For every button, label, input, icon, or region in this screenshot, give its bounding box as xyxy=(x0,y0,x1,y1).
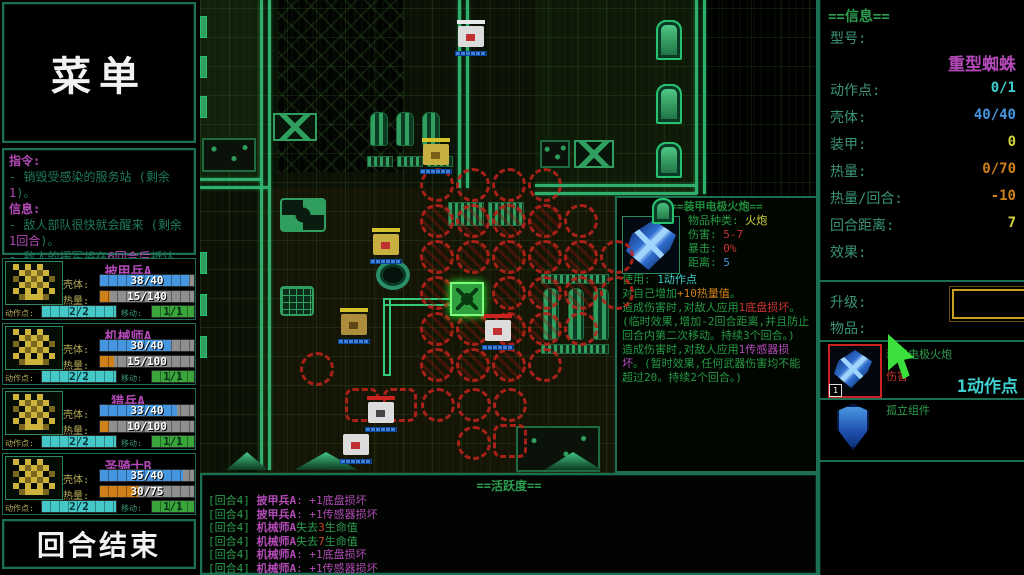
map-prop-tab xyxy=(200,336,207,358)
unit-card-1[interactable]: 披甲兵A 壳体: 38/40 热量: 15/140 动作点: 2/2 移动: 1… xyxy=(2,258,196,320)
target-circle[interactable] xyxy=(528,240,562,274)
unit-health-bar xyxy=(340,459,372,464)
model-label: 型号: xyxy=(830,28,866,48)
target-circle[interactable] xyxy=(564,204,598,238)
ap-label: 动作点: xyxy=(5,308,34,319)
unit-portrait xyxy=(5,456,63,500)
item-row-2[interactable]: 孤立组件 xyxy=(820,398,1024,462)
ap-bar: 2/2 xyxy=(41,500,117,513)
target-circle[interactable] xyxy=(528,276,562,310)
map-viewport[interactable]: ==装甲电极火炮== 物品种类: 火炮 伤害: 5-7 暴击: 0% 距离: 5… xyxy=(200,0,818,473)
drill-weapon-icon xyxy=(834,350,872,388)
unit-portrait xyxy=(5,326,63,370)
map-prop-crate xyxy=(202,138,256,172)
unit-card-2[interactable]: 机械师A 壳体: 30/40 热量: 15/100 动作点: 2/2 移动: 1… xyxy=(2,323,196,385)
map-prop-fanp xyxy=(280,198,326,232)
end-turn-button[interactable]: 回合结束 xyxy=(2,519,196,569)
log-line: [回合4] 机械师A: +1底盘损坏 xyxy=(208,548,810,562)
upgrade-label: 升级: xyxy=(830,292,866,312)
target-circle[interactable] xyxy=(600,240,634,274)
map-prop-arch xyxy=(656,142,682,178)
target-circle[interactable] xyxy=(528,348,562,382)
end-turn-label: 回合结束 xyxy=(37,524,161,564)
map-prop-arch xyxy=(656,84,682,124)
unit-status-bar xyxy=(422,138,450,142)
target-circle[interactable] xyxy=(564,276,598,310)
heat-bar: 15/140 xyxy=(99,290,195,303)
shell-label: 壳体: xyxy=(830,107,866,127)
map-prop-crate xyxy=(540,140,570,168)
map-prop-panel xyxy=(367,156,393,167)
tooltip-title: ==装甲电极火炮== xyxy=(622,200,811,214)
map-wall xyxy=(268,0,271,470)
movement-path xyxy=(383,298,391,376)
action-cost: 1动作点 xyxy=(957,372,1018,397)
robot-accent xyxy=(431,152,440,159)
target-circle[interactable] xyxy=(492,348,526,382)
target-circle[interactable] xyxy=(493,424,527,458)
ap-bar: 2/2 xyxy=(41,370,117,383)
map-unit[interactable] xyxy=(338,308,370,344)
target-circle[interactable] xyxy=(492,276,526,310)
shell-bar: 33/40 xyxy=(99,404,195,417)
robot-accent xyxy=(351,442,360,449)
target-circle[interactable] xyxy=(528,312,562,346)
target-circle[interactable] xyxy=(456,204,490,238)
map-unit[interactable] xyxy=(455,20,487,56)
model-value: 重型蜘蛛 xyxy=(948,50,1016,75)
target-circle[interactable] xyxy=(420,204,454,238)
map-wall xyxy=(260,0,263,470)
map-unit[interactable] xyxy=(482,314,514,350)
heat-label: 热量: xyxy=(830,161,866,181)
item-count-badge: 1 xyxy=(829,384,842,397)
log-line: [回合4] 机械师A失去7生命值 xyxy=(208,535,810,549)
target-circle[interactable] xyxy=(421,388,455,422)
order-line: - 销毁受感染的服务站 (剩余1)。 xyxy=(9,169,189,201)
map-prop-ring xyxy=(376,260,410,290)
heat-per-turn-label: 热量/回合: xyxy=(830,188,903,208)
move-bar: 1/1 xyxy=(151,500,195,513)
map-prop-tab xyxy=(200,294,207,316)
selected-enemy-tile[interactable] xyxy=(450,282,484,316)
target-circle[interactable] xyxy=(456,348,490,382)
shell-label: 壳体: xyxy=(63,341,89,356)
upgrade-slot[interactable] xyxy=(952,289,1024,319)
target-circle[interactable] xyxy=(420,276,454,310)
target-circle[interactable] xyxy=(528,168,562,202)
target-circle[interactable] xyxy=(420,240,454,274)
heat-value: 0/70 xyxy=(982,161,1016,177)
target-circle[interactable] xyxy=(528,204,562,238)
spider-sprite-icon xyxy=(456,288,478,310)
unit-status-bar xyxy=(340,308,368,312)
ap-bar: 2/2 xyxy=(41,435,117,448)
map-prop-tab xyxy=(200,96,207,118)
info-line: - 敌人部队很快就会醒来 (剩余1回合)。 xyxy=(9,217,189,249)
shell-label: 壳体: xyxy=(63,406,89,421)
log-title: ==活跃度== xyxy=(208,477,810,494)
target-circle[interactable] xyxy=(457,388,491,422)
map-prop-rack xyxy=(396,112,414,146)
item-name: 孤立组件 xyxy=(886,402,930,418)
heat-bar: 15/100 xyxy=(99,355,195,368)
shell-bar: 30/40 xyxy=(99,339,195,352)
turn-range-value: 7 xyxy=(1008,215,1016,231)
map-wall xyxy=(200,186,270,189)
log-line: [回合4] 披甲兵A: +1传感器损坏 xyxy=(208,508,810,522)
unit-portrait xyxy=(5,261,63,305)
heat-bar: 30/75 xyxy=(99,485,195,498)
robot-accent xyxy=(381,242,390,249)
map-prop-xcrate xyxy=(574,140,614,168)
objectives-panel: 指令: - 销毁受感染的服务站 (剩余1)。 信息: - 敌人部队很快就会醒来 … xyxy=(2,148,196,255)
target-circle[interactable] xyxy=(600,276,634,310)
unit-status-bar xyxy=(367,396,395,400)
shell-bar: 38/40 xyxy=(99,274,195,287)
map-unit[interactable] xyxy=(340,428,372,464)
target-circle[interactable] xyxy=(564,312,598,346)
armor-label: 装甲: xyxy=(830,134,866,154)
unit-health-bar xyxy=(455,51,487,56)
menu-title: 菜单 xyxy=(51,44,147,102)
activity-log-panel: ==活跃度== [回合4] 披甲兵A: +1底盘损坏 [回合4] 披甲兵A: +… xyxy=(200,473,818,575)
shell-bar: 35/40 xyxy=(99,469,195,482)
unit-health-bar xyxy=(338,339,370,344)
map-prop-tab xyxy=(200,16,207,38)
map-wall xyxy=(703,0,706,194)
shield-item-icon xyxy=(836,404,870,450)
ap-label: 动作点: xyxy=(5,373,34,384)
target-circle[interactable] xyxy=(493,388,527,422)
target-circle[interactable] xyxy=(420,312,454,346)
ap-label: 动作点: xyxy=(5,438,34,449)
target-circle[interactable] xyxy=(456,168,490,202)
target-circle[interactable] xyxy=(492,204,526,238)
target-circle[interactable] xyxy=(564,240,598,274)
target-circle[interactable] xyxy=(456,240,490,274)
mech-sprite-icon xyxy=(13,394,19,400)
map-wall xyxy=(200,178,262,181)
unit-status-bar xyxy=(484,314,512,318)
unit-status-bar xyxy=(372,228,400,232)
robot-accent xyxy=(376,410,385,417)
move-label: 移动: xyxy=(121,503,142,514)
unit-health-bar xyxy=(370,259,402,264)
target-circle[interactable] xyxy=(420,348,454,382)
mech-sprite-icon xyxy=(13,459,19,465)
menu-button[interactable]: 菜单 xyxy=(2,2,196,143)
robot-accent xyxy=(493,328,502,335)
target-circle[interactable] xyxy=(300,352,334,386)
mech-sprite-icon xyxy=(13,264,19,270)
robot-accent xyxy=(349,322,358,329)
unit-portrait xyxy=(5,391,63,435)
ap-value: 0/1 xyxy=(991,80,1016,96)
heat-bar: 10/100 xyxy=(99,420,195,433)
shell-label: 壳体: xyxy=(63,276,89,291)
map-unit[interactable] xyxy=(370,228,402,264)
turn-range-label: 回合距离: xyxy=(830,215,894,235)
map-prop-tab xyxy=(200,56,207,78)
tooltip-body: 使用: 1动作点 对自己增加+10热量值。 造成伤害时,对敌人应用1底盘损坏。(… xyxy=(622,273,811,385)
shell-value: 40/40 xyxy=(974,107,1016,123)
unit-health-bar xyxy=(482,345,514,350)
log-line: [回合4] 披甲兵A: +1底盘损坏 xyxy=(208,494,810,508)
shell-label: 壳体: xyxy=(63,471,89,486)
unit-health-bar xyxy=(420,169,452,174)
item-slot-selected[interactable]: 1 xyxy=(828,344,882,398)
ap-bar: 2/2 xyxy=(41,305,117,318)
log-line: [回合4] 机械师A: +1传感器损坏 xyxy=(208,562,810,575)
move-bar: 1/1 xyxy=(151,305,195,318)
drill-weapon-icon xyxy=(626,220,676,270)
target-circle[interactable] xyxy=(457,426,491,460)
divider xyxy=(820,280,1024,282)
items-label: 物品: xyxy=(830,318,866,338)
move-label: 移动: xyxy=(121,438,142,449)
move-bar: 1/1 xyxy=(151,435,195,448)
tooltip-stats: 物品种类: 火炮 伤害: 5-7 暴击: 0% 距离: 5 xyxy=(688,214,811,270)
move-label: 移动: xyxy=(121,308,142,319)
effects-label: 效果: xyxy=(830,242,866,262)
map-prop-circuit xyxy=(280,286,314,316)
target-circle[interactable] xyxy=(492,240,526,274)
info-title: ==信息== xyxy=(828,6,890,26)
map-wall xyxy=(695,0,698,194)
robot-accent xyxy=(466,34,475,41)
map-prop-xcrate xyxy=(273,113,317,141)
target-circle[interactable] xyxy=(492,168,526,202)
unit-card-3[interactable]: 猎兵A 壳体: 33/40 热量: 10/100 动作点: 2/2 移动: 1/… xyxy=(2,388,196,450)
map-unit[interactable] xyxy=(365,396,397,432)
map-prop-rack xyxy=(370,112,388,146)
unit-card-4[interactable]: 圣骑士B 壳体: 35/40 热量: 30/75 动作点: 2/2 移动: 1/… xyxy=(2,453,196,515)
orders-header: 指令: xyxy=(9,153,189,169)
map-unit[interactable] xyxy=(420,138,452,174)
weapon-tooltip: ==装甲电极火炮== 物品种类: 火炮 伤害: 5-7 暴击: 0% 距离: 5… xyxy=(615,196,818,473)
log-line: [回合4] 机械师A失去3生命值 xyxy=(208,521,810,535)
heat-per-turn-value: -10 xyxy=(991,188,1016,204)
ap-label: 动作点: xyxy=(5,503,34,514)
ap-label: 动作点: xyxy=(830,80,880,100)
item-row-1[interactable]: 1 装甲电极火炮 伤害 1动作点 xyxy=(820,340,1024,400)
map-prop-arch xyxy=(656,20,682,60)
map-prop-tab xyxy=(200,252,207,274)
armor-value: 0 xyxy=(1008,134,1016,150)
move-label: 移动: xyxy=(121,373,142,384)
info-header: 信息: xyxy=(9,201,189,217)
mech-sprite-icon xyxy=(13,329,19,335)
target-info-panel: ==信息== 型号: 重型蜘蛛 动作点:0/1 壳体:40/40 装甲:0 热量… xyxy=(818,0,1024,575)
map-prop-arch xyxy=(652,198,674,224)
unit-status-bar xyxy=(457,20,485,24)
move-bar: 1/1 xyxy=(151,370,195,383)
